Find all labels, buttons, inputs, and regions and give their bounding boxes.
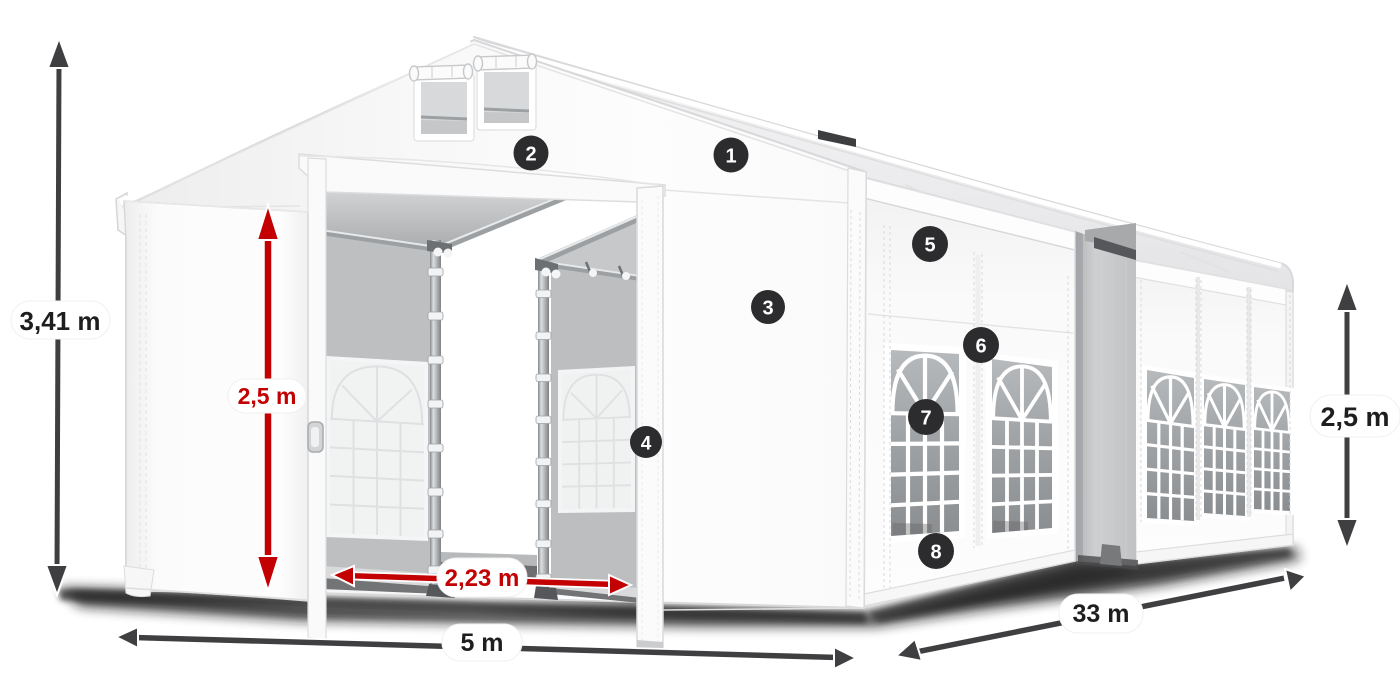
svg-text:4: 4 xyxy=(641,434,652,455)
svg-text:8: 8 xyxy=(930,542,941,564)
svg-text:1: 1 xyxy=(725,146,736,168)
svg-text:2,5 m: 2,5 m xyxy=(1320,402,1389,432)
svg-text:2,5 m: 2,5 m xyxy=(238,383,297,409)
svg-text:7: 7 xyxy=(920,408,931,430)
svg-text:2: 2 xyxy=(525,144,536,166)
svg-text:5: 5 xyxy=(924,235,935,257)
svg-text:3: 3 xyxy=(762,298,773,320)
svg-text:3,41 m: 3,41 m xyxy=(20,306,101,336)
svg-text:5 m: 5 m xyxy=(460,629,503,657)
svg-text:6: 6 xyxy=(975,336,986,358)
svg-text:2,23 m: 2,23 m xyxy=(445,565,520,592)
svg-text:33 m: 33 m xyxy=(1073,600,1130,628)
